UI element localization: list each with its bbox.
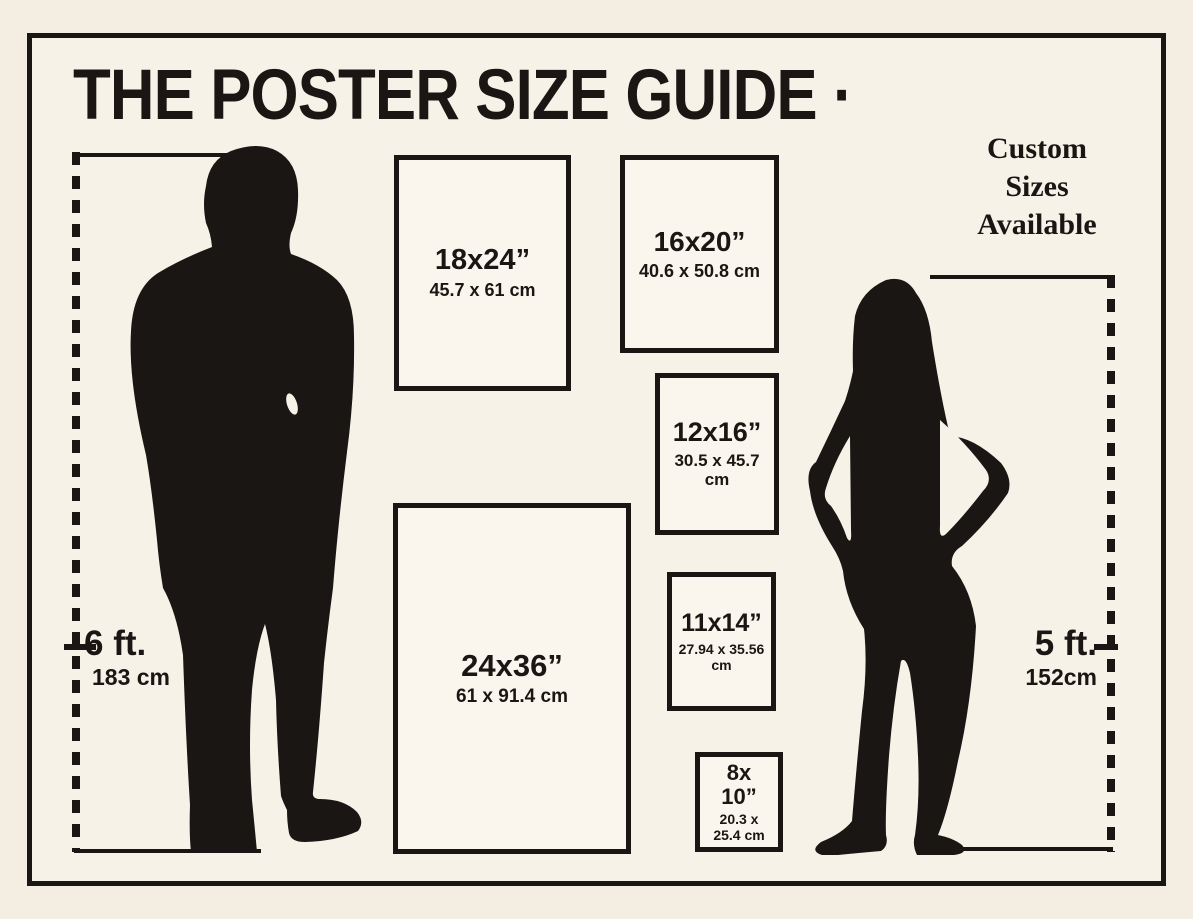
size-cm-label: 61 x 91.4 cm <box>456 686 568 708</box>
height-cm-label-left: 183 cm <box>92 666 170 689</box>
size-inches-label: 18x24” <box>435 245 530 277</box>
size-inches-label: 16x20” <box>654 227 746 258</box>
size-inches-label: 8x 10” <box>721 761 756 809</box>
size-cm-label: 27.94 x 35.56 cm <box>672 641 771 673</box>
size-inches-label: 11x14” <box>681 610 762 638</box>
woman-silhouette <box>808 279 1009 855</box>
size-inches-label: 24x36” <box>461 649 563 683</box>
poster-box-12x16: 12x16” 30.5 x 45.7 cm <box>655 373 779 535</box>
man-silhouette <box>131 146 362 852</box>
size-cm-label: 30.5 x 45.7 cm <box>660 451 774 490</box>
size-cm-label: 45.7 x 61 cm <box>429 280 535 301</box>
height-feet-label-right: 5 ft. <box>1000 626 1097 661</box>
poster-box-11x14: 11x14” 27.94 x 35.56 cm <box>667 572 776 711</box>
size-cm-label: 20.3 x 25.4 cm <box>713 811 764 843</box>
size-inches-label: 12x16” <box>673 418 762 448</box>
poster-box-18x24: 18x24” 45.7 x 61 cm <box>394 155 571 391</box>
height-cm-label-right: 152cm <box>1000 666 1097 689</box>
poster-size-guide: { "page": { "title": "THE POSTER SIZE GU… <box>0 0 1193 919</box>
size-cm-label: 40.6 x 50.8 cm <box>639 261 760 282</box>
poster-box-24x36: 24x36” 61 x 91.4 cm <box>393 503 631 854</box>
poster-box-16x20: 16x20” 40.6 x 50.8 cm <box>620 155 779 353</box>
height-feet-label-left: 6 ft. <box>84 626 146 661</box>
poster-box-8x10: 8x 10” 20.3 x 25.4 cm <box>695 752 783 852</box>
